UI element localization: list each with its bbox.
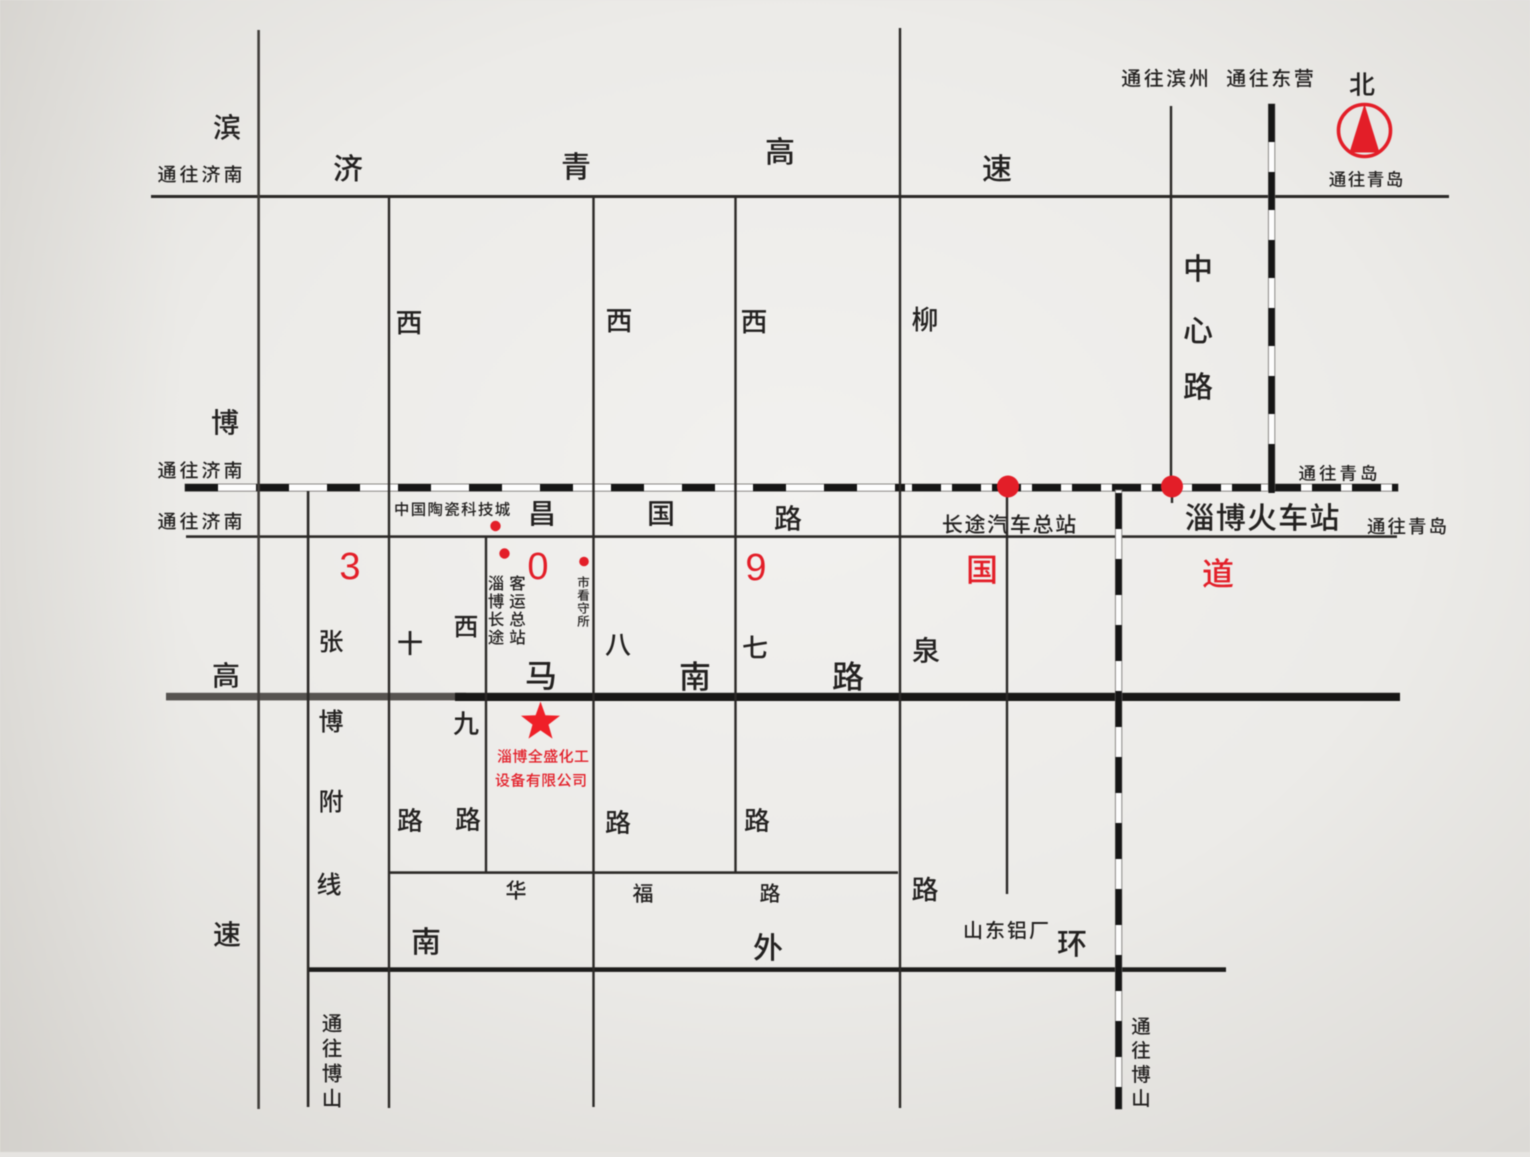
svg-text:9: 9: [745, 547, 766, 589]
svg-text:3: 3: [339, 546, 360, 588]
svg-text:0: 0: [527, 546, 548, 588]
